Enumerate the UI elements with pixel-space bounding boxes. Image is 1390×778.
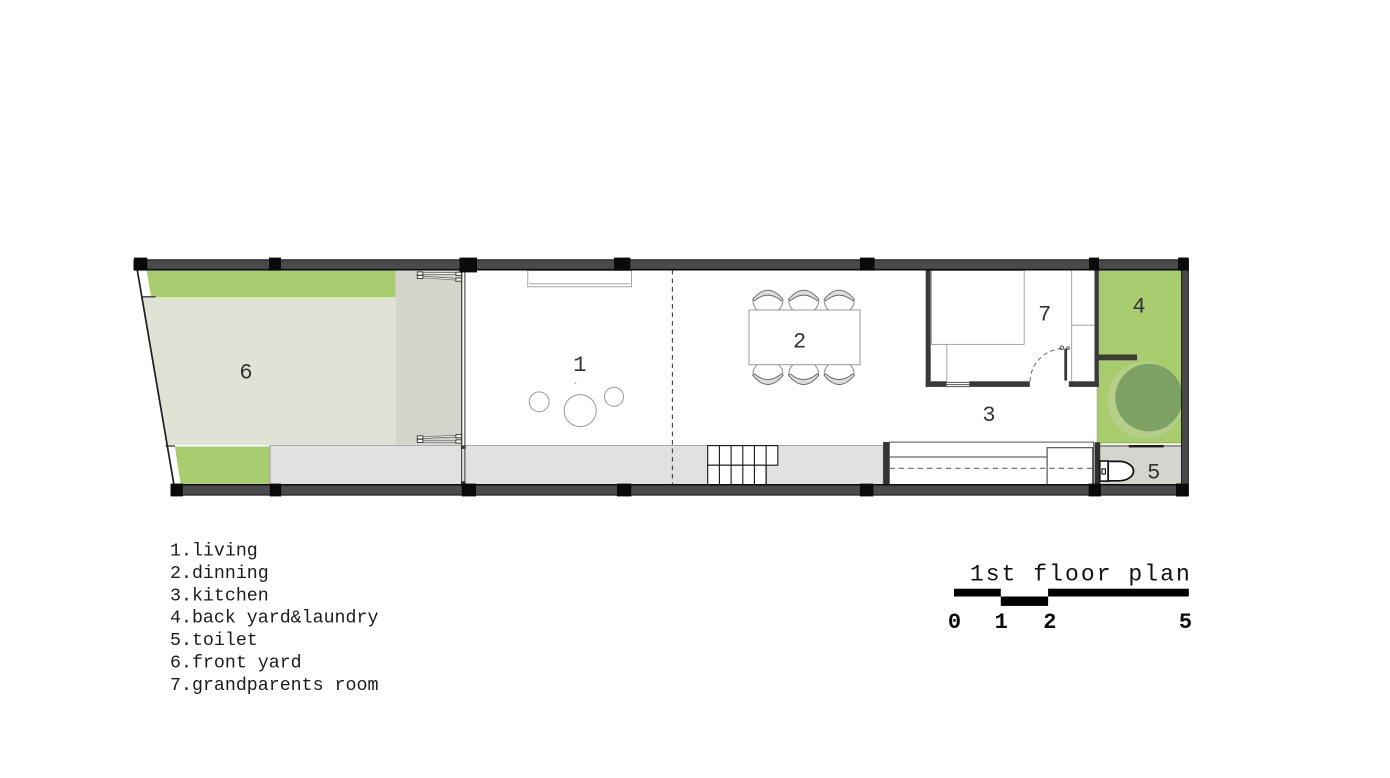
svg-text:0: 0 [948, 610, 961, 635]
svg-text:1.living: 1.living [170, 542, 258, 562]
svg-text:5.toilet: 5.toilet [170, 631, 258, 651]
svg-text:7: 7 [1038, 303, 1051, 328]
svg-text:7.grandparents room: 7.grandparents room [170, 676, 378, 696]
svg-text:2: 2 [1043, 610, 1056, 635]
svg-text:2.dinning: 2.dinning [170, 564, 269, 584]
svg-text:6: 6 [239, 360, 252, 385]
svg-text:1st floor plan: 1st floor plan [970, 561, 1192, 587]
svg-text:3: 3 [982, 403, 995, 428]
svg-text:1: 1 [995, 610, 1008, 635]
svg-text:5: 5 [1179, 610, 1192, 635]
svg-text:5: 5 [1147, 460, 1160, 485]
svg-text:2: 2 [793, 330, 806, 355]
svg-text:4.back yard&laundry: 4.back yard&laundry [170, 609, 378, 629]
svg-text:4: 4 [1132, 294, 1145, 319]
svg-text:1: 1 [573, 353, 586, 378]
svg-text:6.front yard: 6.front yard [170, 654, 302, 674]
svg-text:3.kitchen: 3.kitchen [170, 586, 269, 606]
